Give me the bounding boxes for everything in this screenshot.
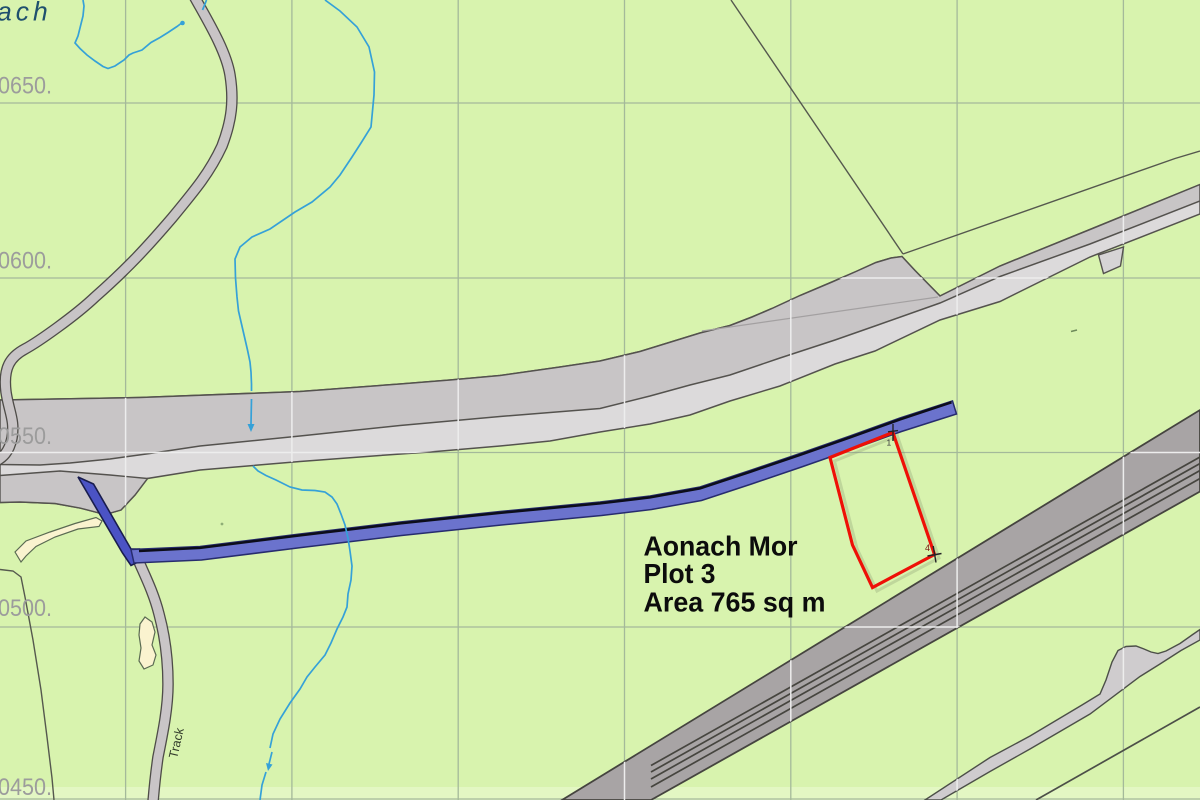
svg-text:Area 765 sq m: Area 765 sq m <box>644 587 826 618</box>
svg-text:0650.: 0650. <box>0 73 52 100</box>
svg-text:Plot 3: Plot 3 <box>644 558 716 589</box>
svg-text:ach: ach <box>0 0 52 27</box>
svg-text:0500.: 0500. <box>0 595 52 622</box>
svg-text:0550.: 0550. <box>0 423 52 450</box>
svg-text:0600.: 0600. <box>0 248 52 275</box>
svg-text:0450.: 0450. <box>0 774 52 800</box>
svg-text:4: 4 <box>925 543 930 553</box>
svg-text:Aonach Mor: Aonach Mor <box>644 531 798 562</box>
svg-text:1: 1 <box>887 438 892 448</box>
